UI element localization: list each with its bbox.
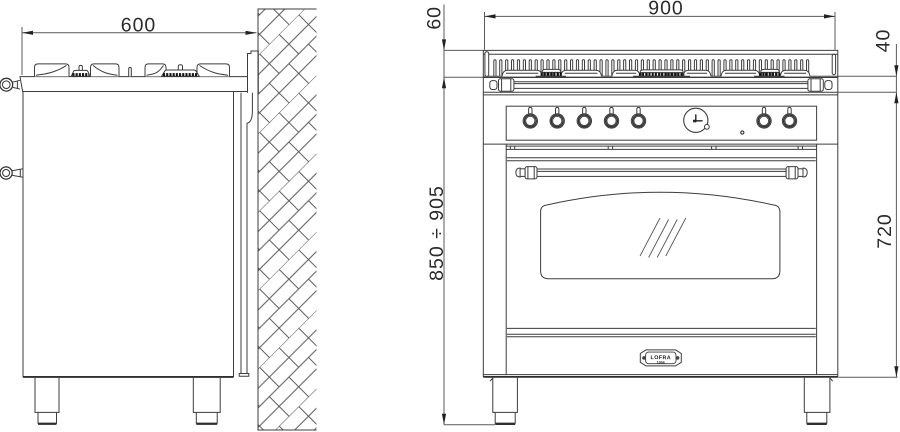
svg-text:850 ÷ 905: 850 ÷ 905	[426, 185, 448, 281]
svg-text:720: 720	[874, 213, 896, 249]
svg-text:60: 60	[423, 6, 445, 30]
svg-text:40: 40	[873, 29, 895, 53]
svg-text:1956: 1956	[657, 361, 665, 365]
